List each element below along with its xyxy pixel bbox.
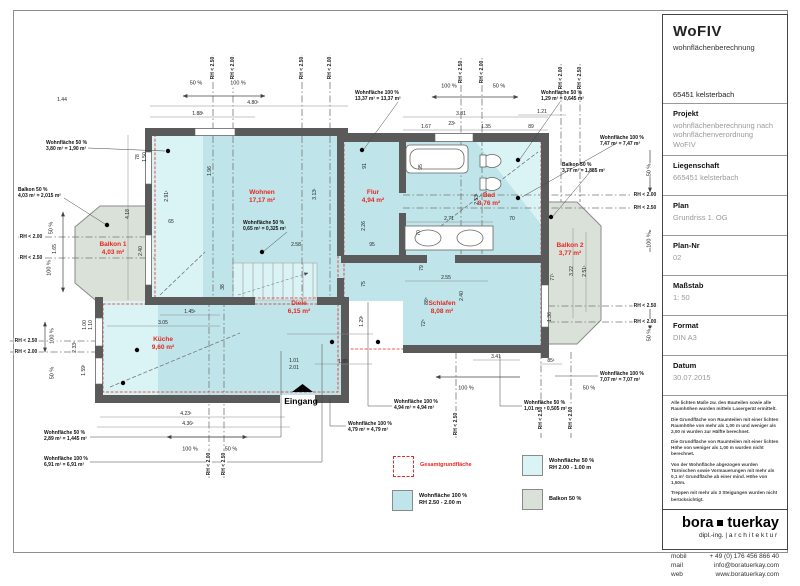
area-annotation: Wohnfläche 50 %0,65 m² = 0,325 m² xyxy=(243,220,286,233)
room-height-marker: RH < 2.50 xyxy=(221,452,227,477)
room-height-marker: RH < 2.50 xyxy=(210,56,216,81)
room-height-marker: RH < 2.50 xyxy=(633,303,658,309)
sheet-title: WoFIV xyxy=(673,23,777,40)
room-height-marker: RH < 2.50 xyxy=(453,412,459,437)
dimension-label: 95 xyxy=(369,242,375,248)
percent-label: 100 % xyxy=(47,260,54,276)
dimension-label: 2.01 xyxy=(289,365,299,371)
room-height-marker: RH < 2.00 xyxy=(633,192,658,198)
dimension-label: 2.71 xyxy=(444,216,454,222)
room-height-marker: RH < 2.50 xyxy=(299,56,305,81)
dimension-label: 1.44 xyxy=(57,97,67,103)
field-ma-stab: Maßstab1: 50 xyxy=(663,275,787,315)
legend-label: Wohnfläche 50 % RH 2.00 - 1.00 m xyxy=(549,455,594,472)
legend-label-line2: RH 2.00 - 1.00 m xyxy=(549,465,591,471)
title-block-header: WoFIV wohnflächenberechnung 65451 kelste… xyxy=(663,15,787,103)
dimension-label: 2.40 xyxy=(459,291,465,301)
dimension-label: 1.88¹ xyxy=(192,111,203,117)
dimension-label: 85¹ xyxy=(547,358,554,364)
dimension-label: 2.26 xyxy=(361,221,367,231)
note-paragraph: Die Grundfläche von Raumteilen mit einer… xyxy=(671,417,779,436)
field-format: FormatDIN A3 xyxy=(663,315,787,355)
dimension-label: 3.22 xyxy=(569,266,575,276)
room-height-marker: RH < 2.00 xyxy=(14,349,39,355)
dimension-label: 2.58 xyxy=(291,242,301,248)
dimension-label: 72⁵ xyxy=(421,319,427,327)
dimension-label: 78 xyxy=(135,154,141,160)
logo-square-icon xyxy=(717,520,723,526)
room-height-marker: RH < 2.00 xyxy=(568,406,574,431)
room-label: Flur4,94 m² xyxy=(362,189,384,205)
dimension-label: 77¹ xyxy=(550,273,556,280)
dimension-label: 1.50 xyxy=(142,152,148,162)
room-height-marker: RH < 2.00 xyxy=(558,66,564,91)
tagline-right: architektur xyxy=(729,532,779,539)
legend-label-line2: RH 2.50 - 2.00 m xyxy=(419,500,461,506)
percent-label: 100 % xyxy=(647,232,654,248)
dimension-label: 23¹ xyxy=(448,121,455,127)
note-paragraph: Von der Wohnfläche abgezogen wurden Türn… xyxy=(671,462,779,487)
dimension-label: 89 xyxy=(528,124,534,130)
room-label: Wohnen17,17 m² xyxy=(249,189,275,205)
dimension-label: 1.01 xyxy=(289,358,299,364)
dimension-label: 2.40 xyxy=(138,246,144,256)
field-projekt: Projektwohnflächenberechnung nach wohnfl… xyxy=(663,103,787,155)
dimension-label: 75 xyxy=(361,281,367,287)
dimension-label: 2.91¹ xyxy=(164,190,170,201)
dimension-label: 70 xyxy=(509,216,515,222)
percent-label: 50 % xyxy=(49,222,56,235)
tagline-left: dipl.-ing. | xyxy=(699,532,727,539)
area-annotation: Wohnfläche 50 %1,29 m² = 0,645 m² xyxy=(541,90,584,103)
percent-label: 100 % xyxy=(182,447,198,454)
area-annotation: Wohnfläche 50 %2,89 m² = 1,445 m² xyxy=(44,430,87,443)
legend-label: Wohnfläche 100 % RH 2.50 - 2.00 m xyxy=(419,490,467,507)
dimension-label: 2.55 xyxy=(441,275,451,281)
dimension-label: 2.33¹ xyxy=(72,341,78,352)
area-annotation: Wohnfläche 100 %13,37 m² = 13,37 m² xyxy=(355,90,401,103)
legend-label-line1: Wohnfläche 50 % xyxy=(549,458,594,464)
legend-swatch-100-icon xyxy=(392,490,413,511)
dimension-label: 79 xyxy=(419,265,425,271)
dimension-label: 4.18 xyxy=(125,209,131,219)
room-height-marker: RH < 2.00 xyxy=(19,234,44,240)
room-height-marker: RH < 2.00 xyxy=(479,60,485,85)
room-height-marker: RH < 2.00 xyxy=(633,319,658,325)
dimension-label: 1.45¹ xyxy=(184,309,195,315)
dimension-label: 91 xyxy=(362,163,368,169)
percent-label: 50 % xyxy=(583,386,596,393)
room-height-marker: RH < 2.50 xyxy=(577,66,583,91)
legend-label: Gesamtgrundfläche xyxy=(420,456,472,469)
contact-row: mailinfo@boratuerkay.com xyxy=(671,562,779,569)
dimension-label: 1.85 xyxy=(338,359,348,365)
firm-logo: boratuerkay dipl.-ing. | architektur xyxy=(663,509,787,541)
dimension-label: 1.10 xyxy=(88,320,94,330)
legend-label-line1: Wohnfläche 100 % xyxy=(419,493,467,499)
logo-name-right: tuerkay xyxy=(727,515,779,531)
dimension-label: 88⁵ xyxy=(424,297,430,305)
area-annotation: Wohnfläche 100 %4,94 m² = 4,94 m² xyxy=(394,399,438,412)
legend: Gesamtgrundfläche Wohnfläche 100 % RH 2.… xyxy=(385,450,650,525)
dimension-label: 65 xyxy=(168,219,174,225)
room-height-marker: RH < 2.50 xyxy=(538,406,544,431)
area-annotation: Wohnfläche 100 %7,07 m² = 7,07 m² xyxy=(600,371,644,384)
dimension-label: 2.51¹ xyxy=(582,265,588,276)
area-annotation: Balkon 50 %3,77 m² = 1,885 m² xyxy=(562,162,605,175)
area-annotation: Wohnfläche 100 %4,79 m² = 4,79 m² xyxy=(348,421,392,434)
dimension-label: 1.29¹ xyxy=(359,315,365,326)
legend-swatch-50-icon xyxy=(522,455,543,476)
field-liegenschaft: Liegenschaft665451 kelsterbach xyxy=(663,155,787,195)
legend-swatch-balkon-icon xyxy=(522,489,543,510)
note-paragraph: Treppen mit mehr als 3 Steigungen wurden… xyxy=(671,490,779,502)
area-annotation: Wohnfläche 100 %6,91 m² = 6,91 m² xyxy=(44,456,88,469)
sheet-subtitle: wohnflächenberechnung xyxy=(673,43,777,52)
drawing-sheet: { "title_block": { "title": "WoFIV", "su… xyxy=(0,0,800,566)
percent-label: 50 % xyxy=(493,84,506,91)
notes: Alle lichten Maße zw. den Bauteilen sowi… xyxy=(663,395,787,509)
dimension-label: 38 xyxy=(220,284,226,290)
dimension-label: 3.13¹ xyxy=(312,188,318,199)
note-paragraph: Alle lichten Maße zw. den Bauteilen sowi… xyxy=(671,400,779,412)
field-plan-nr: Plan-Nr02 xyxy=(663,235,787,275)
field-datum: Datum30.07.2015 xyxy=(663,355,787,395)
dimension-label: 4.23¹ xyxy=(180,411,191,417)
sheet-address: 65451 kelsterbach xyxy=(673,90,777,99)
dimension-label: 3.41 xyxy=(491,354,501,360)
area-annotation: Balkon 50 %4,03 m² = 2,015 m² xyxy=(18,187,61,200)
contact-row: mobil+ 49 (0) 176 456 866 40 xyxy=(671,553,779,560)
room-height-marker: RH < 2.50 xyxy=(14,338,39,344)
room-height-marker: RH < 2.50 xyxy=(633,205,658,211)
dimension-label: 1.65 xyxy=(52,244,58,254)
area-annotation: Wohnfläche 100 %7,47 m² = 7,47 m² xyxy=(600,135,644,148)
title-block: WoFIV wohnflächenberechnung 65451 kelste… xyxy=(662,14,788,550)
room-height-marker: RH < 2.00 xyxy=(327,56,333,81)
room-label: Balkon 14,03 m² xyxy=(99,241,126,257)
percent-label: 50 % xyxy=(647,329,654,342)
contact-row: webwww.boratuerkay.com xyxy=(671,571,779,578)
percent-label: 50 % xyxy=(225,447,238,454)
dimension-label: 1.36 xyxy=(547,312,553,322)
legend-item-wohnflaeche-100: Wohnfläche 100 % RH 2.50 - 2.00 m xyxy=(392,490,467,511)
percent-label: 100 % xyxy=(458,386,474,393)
room-height-marker: RH < 2.00 xyxy=(230,56,236,81)
legend-item-wohnflaeche-50: Wohnfläche 50 % RH 2.00 - 1.00 m xyxy=(522,455,594,476)
dimension-label: 3.81 xyxy=(456,111,466,117)
room-label: Balkon 23,77 m² xyxy=(556,242,583,258)
percent-label: 50 % xyxy=(190,81,203,88)
room-label: Schlafen8,08 m² xyxy=(428,300,455,316)
dimension-label: 1.59¹ xyxy=(81,364,87,375)
room-height-marker: RH < 2.50 xyxy=(458,60,464,85)
room-label: Bad8,76 m² xyxy=(478,192,500,208)
legend-item-gesamtgrundflaeche: Gesamtgrundfläche xyxy=(393,456,472,477)
percent-label: 50 % xyxy=(50,367,57,380)
dimension-label: 70 xyxy=(416,230,422,236)
room-height-marker: RH < 2.00 xyxy=(206,452,212,477)
room-height-marker: RH < 2.50 xyxy=(19,255,44,261)
contact-rows: mobil+ 49 (0) 176 456 866 40mailinfo@bor… xyxy=(663,541,787,586)
dimension-label: 1.35 xyxy=(481,124,491,130)
legend-swatch-total-area-icon xyxy=(393,456,414,477)
firm-tagline: dipl.-ing. | architektur xyxy=(671,532,779,539)
dimension-label: 1.21 xyxy=(537,109,547,115)
percent-label: 100 % xyxy=(230,81,246,88)
room-label: Küche9,60 m² xyxy=(152,336,174,352)
firm-logo-name: boratuerkay xyxy=(671,515,779,531)
percent-label: 100 % xyxy=(50,328,57,344)
area-annotation: Wohnfläche 50 %1,01 m² = 0,505 m² xyxy=(524,400,567,413)
title-fields: Projektwohnflächenberechnung nach wohnfl… xyxy=(663,103,787,395)
dimension-label: 4.80¹ xyxy=(247,100,258,106)
dimension-label: 2.53¹ xyxy=(474,193,480,204)
legend-label: Balkon 50 % xyxy=(549,489,581,503)
entrance-label: Eingang xyxy=(284,396,318,406)
dimension-label: 3.05 xyxy=(158,320,168,326)
dimension-label: 1.96 xyxy=(207,166,213,176)
dimension-label: 1.67 xyxy=(421,124,431,130)
dimension-label: 95 xyxy=(418,164,424,170)
note-paragraph: Die Grundfläche von Raumteilen mit einer… xyxy=(671,439,779,458)
room-label: Diele6,15 m² xyxy=(288,300,310,316)
field-plan: PlanGrundriss 1. OG xyxy=(663,195,787,235)
legend-item-balkon: Balkon 50 % xyxy=(522,489,581,510)
percent-label: 50 % xyxy=(647,164,654,177)
dimension-label: 4.36¹ xyxy=(182,421,193,427)
percent-label: 100 % xyxy=(441,84,457,91)
logo-name-left: bora xyxy=(682,515,713,531)
area-annotation: Wohnfläche 50 %3,80 m² = 1,90 m² xyxy=(46,140,87,153)
